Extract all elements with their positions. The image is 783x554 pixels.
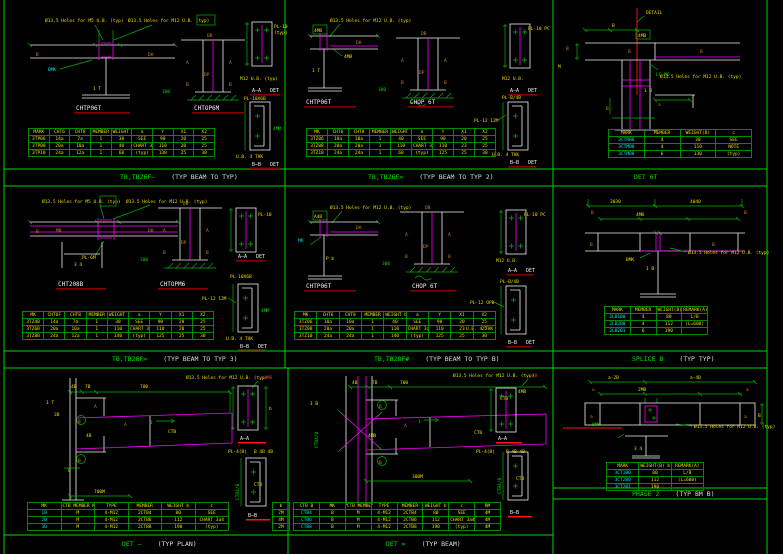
table-header-cell: CHT6F (44, 312, 65, 319)
parts-table-r3c1: MKCTB MEMBER NO.(d,b)TYPEMEMBERWEIGHT bc… (27, 502, 229, 531)
view-caption-r3c1: DET —(TYP PLAN) (122, 539, 197, 549)
dim-label: a (658, 103, 661, 108)
caption-label: DET 6T (634, 172, 657, 182)
table-row: 3CT1B080L/B (607, 470, 704, 477)
table-cell: 20a (317, 326, 339, 333)
dim-label: 300M (412, 474, 423, 480)
table-cell: 4-M12 (371, 517, 397, 524)
table-cell: CHART 3a4 (129, 326, 150, 333)
table-cell: 20a (339, 326, 361, 333)
table-row: CTB4BM4-M122CTB480SEE4M (294, 510, 501, 517)
caption-label: TB,TB26F= (368, 172, 403, 182)
table-cell: 40 (384, 319, 406, 326)
table-header-cell: MARK (609, 130, 645, 137)
table-header-cell: X1 (451, 312, 473, 319)
table-cell: (typ) (195, 524, 229, 531)
table-header-cell: Y (428, 312, 450, 319)
section-caption: DET (528, 88, 537, 94)
table-cell: 7M (273, 510, 290, 517)
table-cell: 90 (428, 319, 450, 326)
table-cell: 4 (644, 137, 680, 144)
panel-corner-connection-detail: DETAIL B 4MB LC M6 B B Ø13.5 Holes for M… (558, 8, 741, 130)
parts-table-r3c2: CTB BMKCTB MEMBER NO.(d,b)TYPEMEMBERWEIG… (293, 502, 501, 531)
table-row: 3TP1024a12a160(typ)1302530 (29, 150, 215, 157)
panel-beam-plan-detail: a-2B a-4B 2MB a a a a B BMK Ø13.5 Holes … (563, 375, 775, 458)
table-cell: 140 (107, 333, 128, 340)
table-header-cell: MEMBER (86, 312, 107, 319)
detail-title: CHT208B (58, 281, 84, 288)
table-cell: 30 (680, 137, 716, 144)
table-header-row: b (273, 503, 290, 510)
dim-label: a (746, 388, 749, 393)
table-cell: 24a (317, 333, 339, 340)
table-row: 3TP0820a10a140CHART 3a41102025 (29, 143, 215, 150)
detail-title: CHOP 6T (410, 99, 436, 106)
view-caption-r1c3: DET 6T (634, 172, 673, 182)
plate-label: PL-4(B) (476, 449, 495, 455)
section-marker: B (229, 82, 232, 88)
parts-table-r2c2: MKCHT6CHT8MEMBERWEIGHT baYX1X23TZ0610a10… (294, 311, 496, 340)
mark-label: BMK (48, 67, 56, 73)
table-header-cell: CTB MEMBER NO.(d,b) (345, 503, 371, 510)
table-header-cell: MEMBER (128, 503, 162, 510)
dim-label: 1 B (644, 88, 652, 94)
section-marker: B (444, 80, 447, 86)
caption-subtitle: (TYP BEAM TO TYP B) (425, 354, 499, 364)
table-cell: 2CTB6 (397, 517, 423, 524)
table-header-cell: TYPE (371, 503, 397, 510)
table-cell: 10a (65, 326, 86, 333)
table-row: 4M (273, 517, 290, 524)
section-marker: A (186, 60, 189, 66)
caption-subtitle: (TYP BEAM) (422, 539, 461, 549)
dim-label: CTB4/B (497, 477, 503, 494)
member-label: DB (425, 205, 431, 211)
plate-label: PL-10X6B (230, 274, 252, 280)
table-cell: 20 (173, 143, 194, 150)
table-cell: 90 (152, 136, 173, 143)
bolt-label: M12 U.B. (typ) (240, 76, 278, 82)
table-cell: 125 (428, 333, 450, 340)
table-cell: 110 (391, 143, 412, 150)
table-header-cell: WEIGHT b (107, 312, 128, 319)
section-caption: DET (526, 340, 535, 346)
dim-label: P b (326, 256, 334, 262)
table-cell: 140 (384, 333, 406, 340)
table-header-cell: WEIGHT(B) (680, 130, 716, 137)
table-cell: 4 (630, 321, 656, 328)
section-marker: B (379, 404, 382, 410)
table-header-cell: WEIGHT b (423, 503, 449, 510)
table-cell: 110 (384, 326, 406, 333)
table-cell: SEE (406, 319, 428, 326)
table-cell: 30 (475, 150, 496, 157)
table-cell: 6 (630, 328, 656, 335)
table-cell: (typ) (449, 524, 475, 531)
table-row: 3TZ0610a10a140SEE902025 (295, 319, 496, 326)
table-cell: 24a (349, 150, 370, 157)
caption-label: TB,TB28F# (374, 354, 409, 364)
hole-note: Ø13.5 Holes for M12 U.B. (typ) (186, 374, 267, 381)
table-row: 2M (273, 524, 290, 531)
member-label: DH (356, 225, 362, 231)
table-cell: 24a (49, 150, 70, 157)
table-header-cell: a (406, 312, 428, 319)
table-header-cell: MEMBER (644, 130, 680, 137)
table-cell: 110 (680, 144, 716, 151)
table-header-cell: Y (433, 129, 454, 136)
dim-label: 4MB (264, 375, 272, 381)
table-cell: 190 (423, 524, 449, 531)
member-label: B (700, 49, 703, 55)
table-header-cell: CHT6 (328, 129, 349, 136)
dim-label: 3B (54, 412, 60, 418)
table-header-cell: X1 (454, 129, 475, 136)
member-label: DP (204, 72, 210, 78)
table-header-cell: RM (475, 503, 501, 510)
table-header-row: MARKCHT6CHT8MEMBERWEIGHT baYX1X2 (29, 129, 215, 136)
hole-note: Ø13.5 Holes for M5 U.B. (typ) (45, 17, 124, 24)
detail-title: CHTOPM6 (160, 281, 186, 288)
table-cell: 1 (361, 333, 383, 340)
table-header-cell: WEIGHT b (162, 503, 196, 510)
plate-label: PL-10 (274, 24, 288, 30)
table-cell: 125 (150, 333, 171, 340)
table-row: 3CT2B0112(L=600) (607, 477, 704, 484)
table-header-cell: MEMBER (90, 129, 111, 136)
table-cell: M (61, 510, 95, 517)
table-cell: CHART 3a4 (449, 517, 475, 524)
table-header-cell: X1 (171, 312, 192, 319)
table-cell: 3CT2B0 (607, 477, 639, 484)
section-caption: A—A (238, 254, 247, 260)
section-caption: A—A (240, 436, 249, 442)
dim-label: a-2B (608, 375, 619, 381)
table-cell: 25 (473, 319, 495, 326)
member-label: DB (207, 33, 213, 39)
plate-label: PL-B/4B (500, 279, 519, 285)
table-cell: 3TP10 (29, 150, 50, 157)
table-cell: 20 (451, 319, 473, 326)
table-cell: NOTE (716, 144, 752, 151)
plate-label: PL-12 OPB (470, 300, 495, 306)
table-cell: 3TZ06 (307, 136, 328, 143)
member-label: CTB (254, 482, 262, 488)
dim-label: 4B (86, 433, 92, 439)
table-cell: 25 (454, 150, 475, 157)
view-caption-r1c1: TB,TB26F—(TYP BEAM TO TYP) (120, 172, 238, 182)
table-cell: 3TZ06 (295, 319, 317, 326)
section-caption: DET (526, 268, 535, 274)
table-cell: 24a (328, 150, 349, 157)
detail-title: CHTOP6M (194, 105, 220, 112)
table-cell: 1 (86, 319, 107, 326)
caption-label: TB,TB28F= (112, 354, 147, 364)
member-label: B (712, 242, 715, 248)
hole-note: Ø13.5 Holes for M5 U.B. (typ) (42, 198, 121, 205)
table-cell: 60 (391, 150, 412, 157)
table-header-cell: CHT8 (349, 129, 370, 136)
caption-subtitle: (TYP PLAN) (158, 539, 197, 549)
dim-label: 4MB (368, 433, 376, 439)
section-marker: A (229, 60, 232, 66)
table-cell: 112 (423, 517, 449, 524)
section-caption: DET (270, 162, 279, 168)
table-cell: 3TZ08 (295, 326, 317, 333)
table-header-cell: CTB MEMBER NO.(d,b) (61, 503, 95, 510)
table-cell: M (345, 524, 371, 531)
table-header-cell: c (195, 503, 229, 510)
table-cell: 20 (171, 319, 192, 326)
plate-label: PL-10 (258, 212, 272, 218)
table-header-cell: MARK (607, 463, 639, 470)
section-marker: A (405, 232, 408, 238)
dim-label: 1 B (310, 401, 318, 407)
table-header-cell: CHT8 (65, 312, 86, 319)
hole-note: Ø13.5 Holes for M12 U.B. (typ) (330, 204, 411, 211)
member-label: B (36, 229, 39, 235)
table-cell: 40 (111, 143, 132, 150)
table-row: 3TZ4B14a7a130SEE902025 (23, 319, 214, 326)
table-cell: 4-M12 (95, 524, 129, 531)
dim-label: 700 (400, 380, 408, 386)
table-cell: L/B (671, 470, 703, 477)
caption-subtitle: (TYP BEAM TO TYP 2) (419, 172, 493, 182)
table-cell: 1 (361, 319, 383, 326)
table-cell (682, 328, 708, 335)
member-label: DP (181, 240, 187, 246)
table-cell: CTB4 (294, 510, 320, 517)
member-label: CTB (516, 476, 524, 482)
section-caption: B—B (248, 513, 257, 519)
table-header-cell: WEIGHT(B) b (639, 463, 671, 470)
table-cell: 23 (451, 326, 473, 333)
table-cell: 4 (630, 314, 656, 321)
table-cell: SEE (132, 136, 153, 143)
table-cell: M (61, 517, 95, 524)
table-header-cell: X2 (192, 312, 213, 319)
table-row: 1BM4-M122CTB480SEE (28, 510, 229, 517)
parts-table-r2c1: MKCHT6FCHT8MEMBERWEIGHT baYX1X23TZ4B14a7… (22, 311, 214, 340)
section-marker: B (379, 460, 382, 466)
caption-label: TB,TB26F— (120, 172, 155, 182)
detail-title: CHTP06T (306, 99, 332, 106)
table-cell: 190 (162, 524, 196, 531)
table-cell: M (345, 510, 371, 517)
table-cell: 110 (152, 143, 173, 150)
dim-label: 700M (94, 489, 105, 495)
table-cell: 12a (65, 333, 86, 340)
table-cell: M (345, 517, 371, 524)
table-cell: CHART 3a4 (406, 326, 428, 333)
table-cell: 20a (49, 143, 70, 150)
section-caption: A—A (498, 436, 507, 442)
table-row: 3TZ0610a10a140SEE902025 (307, 136, 496, 143)
table-header-cell: MK (295, 312, 317, 319)
table-cell: B (319, 517, 345, 524)
dim-label: 2MB (638, 387, 646, 393)
table-cell: (L=600) (682, 321, 708, 328)
plate-label: U.B. 4 THK (226, 336, 253, 342)
caption-label: PHASE 2 (632, 489, 659, 499)
table-header-cell: MEMBER (397, 503, 423, 510)
table-cell: 10a (70, 143, 91, 150)
table-row: 3TZ1024a24a160(typ)1252530 (307, 150, 496, 157)
table-header-row: MARKMEMBERWEIGHT(B) bREMARK(A) (605, 307, 708, 314)
table-cell: 40 (391, 136, 412, 143)
dim-label: a (590, 415, 593, 420)
section-marker: B (186, 82, 189, 88)
table-cell: 23 (454, 143, 475, 150)
table-header-cell: CHT8 (339, 312, 361, 319)
caption-label: DET — (122, 539, 142, 549)
table-row: 3TZ6B20a10a1110CHART 3a41102025 (23, 326, 214, 333)
table-cell: 1 (370, 136, 391, 143)
dim-label: 1 T (93, 86, 101, 92)
table-header-cell: X2 (473, 312, 495, 319)
table-header-row: MKCTB MEMBER NO.(d,b)TYPEMEMBERWEIGHT bc (28, 503, 229, 510)
table-cell: (L=600) (671, 477, 703, 484)
table-cell: 1 (370, 143, 391, 150)
table-header-cell: CTB B (294, 503, 320, 510)
member-label: CTB (474, 430, 482, 436)
table-header-row: CTB BMKCTB MEMBER NO.(d,b)TYPEMEMBERWEIG… (294, 503, 501, 510)
table-row: 3TZ1024a24a1140(typ)1252530 (295, 333, 496, 340)
table-cell: 3TZ10 (307, 150, 328, 157)
table-cell: 4M (475, 517, 501, 524)
dim-label: B (612, 23, 615, 29)
table-row: 2LB1B0480L/B (605, 314, 708, 321)
plate-label: PL-12 12M (202, 296, 227, 302)
table-cell: 20 (173, 136, 194, 143)
leader-note: 1 (150, 420, 153, 426)
table-cell: 25 (192, 319, 213, 326)
dim-label: 300 (140, 257, 148, 263)
table-row: 3CTMB84110NOTE (609, 144, 752, 151)
dim-label: 4MB (636, 212, 644, 218)
table-row: CTB6BM4-M122CTB6112CHART 3a44M (294, 517, 501, 524)
member-label: DB (421, 31, 427, 37)
member-label: B (590, 242, 593, 248)
table-cell: 112 (162, 517, 196, 524)
table-cell: 1 (90, 150, 111, 157)
dim-label: B (758, 413, 761, 419)
plate-label: PL-10 PC (528, 26, 550, 32)
caption-label: SPLICE B (632, 354, 663, 364)
member-label: DP (419, 70, 425, 76)
table-header-cell: TYPE (95, 503, 129, 510)
table-cell: 4-M12 (95, 510, 129, 517)
leader-note: DETAIL (646, 10, 663, 16)
table-cell: 2LB1B0 (605, 314, 631, 321)
view-caption-r1c2: TB,TB26F=(TYP BEAM TO TYP 2) (368, 172, 494, 182)
section-caption: A—A (508, 268, 517, 274)
detail-title: CHOP 6T (412, 283, 438, 290)
table-cell: 25 (475, 143, 496, 150)
table-cell: CHART 3a4 (195, 517, 229, 524)
table-cell: 25 (473, 326, 495, 333)
table-cell: 30 (107, 319, 128, 326)
table-cell: 10a (339, 319, 361, 326)
table-cell: 20 (454, 136, 475, 143)
member-label: DH (148, 228, 154, 234)
table-header-cell: MEMBER (370, 129, 391, 136)
table-cell: 7a (70, 136, 91, 143)
plate-label: U.B. 4 THK (236, 154, 263, 160)
section-caption: B—B (510, 510, 519, 516)
table-cell: 25 (451, 333, 473, 340)
table-cell: 1 (90, 143, 111, 150)
table-header-cell: b (273, 503, 290, 510)
table-row: 3TZ0820a20a1110CHART 3a41102325 (295, 326, 496, 333)
dim-label: M (558, 64, 561, 70)
table-cell: (typ) (129, 333, 150, 340)
section-marker: B (78, 419, 81, 425)
table-cell: 125 (433, 150, 454, 157)
table-cell: 4M (475, 524, 501, 531)
plate-label: PL-B/4B (502, 95, 521, 101)
table-cell: 10a (349, 136, 370, 143)
section-caption: DET (528, 160, 537, 166)
table-cell: 20a (44, 326, 65, 333)
table-cell: 110 (150, 326, 171, 333)
plate-label: PL-4(B) (228, 449, 247, 455)
table-header-row: MARKMEMBERWEIGHT(B)c (609, 130, 752, 137)
table-cell: 1 (361, 326, 383, 333)
section-caption: B—B (252, 162, 261, 168)
table-cell: 30 (192, 333, 213, 340)
table-cell: 2CTB4 (128, 510, 162, 517)
section-marker: A (401, 58, 404, 64)
table-cell: 4M (475, 510, 501, 517)
table-cell: 80 (162, 510, 196, 517)
section-caption: B—B (508, 340, 517, 346)
table-cell: CTB8 (294, 524, 320, 531)
table-row: 3TP0614a7a130SEE902025 (29, 136, 215, 143)
section-caption: A—A (252, 88, 261, 94)
mark-label: BMK (626, 257, 634, 263)
table-cell: 80 (639, 470, 671, 477)
table-cell: 4-M12 (371, 510, 397, 517)
table-cell: B (319, 510, 345, 517)
dim-label: 3030 (610, 199, 621, 205)
table-cell: 80 (423, 510, 449, 517)
table-header-cell: WEIGHT b (111, 129, 132, 136)
section-marker: B (405, 254, 408, 260)
section-marker: A (444, 58, 447, 64)
member-label: B (744, 210, 747, 216)
table-cell: 190 (656, 328, 682, 335)
table-cell: 3CTRB6 (609, 137, 645, 144)
dim-label: 1 T (312, 68, 320, 74)
table-cell: 3TZ4B (23, 319, 44, 326)
parts-table-r3c3: MARKWEIGHT(B) bREMARK(A)3CT1B080L/B3CT2B… (606, 462, 704, 491)
table-cell: 3TZ10 (295, 333, 317, 340)
table-cell: 2LB2B0 (605, 321, 631, 328)
table-cell: 112 (656, 321, 682, 328)
table-header-cell: a (412, 129, 433, 136)
table-cell: 2CTB4 (397, 510, 423, 517)
section-marker: A (206, 228, 209, 234)
table-row: 2LB2B16190 (605, 328, 708, 335)
table-cell: 20a (349, 143, 370, 150)
table-cell: B (319, 524, 345, 531)
table-cell: 30 (473, 333, 495, 340)
member-label: DH (356, 40, 362, 46)
table-cell: CHART 3a4 (132, 143, 153, 150)
parts-table-r1c2: MKCHT6CHT8MEMBERWEIGHT baYX1X23TZ0610a10… (306, 128, 496, 157)
dim-label: A4B (314, 214, 322, 220)
